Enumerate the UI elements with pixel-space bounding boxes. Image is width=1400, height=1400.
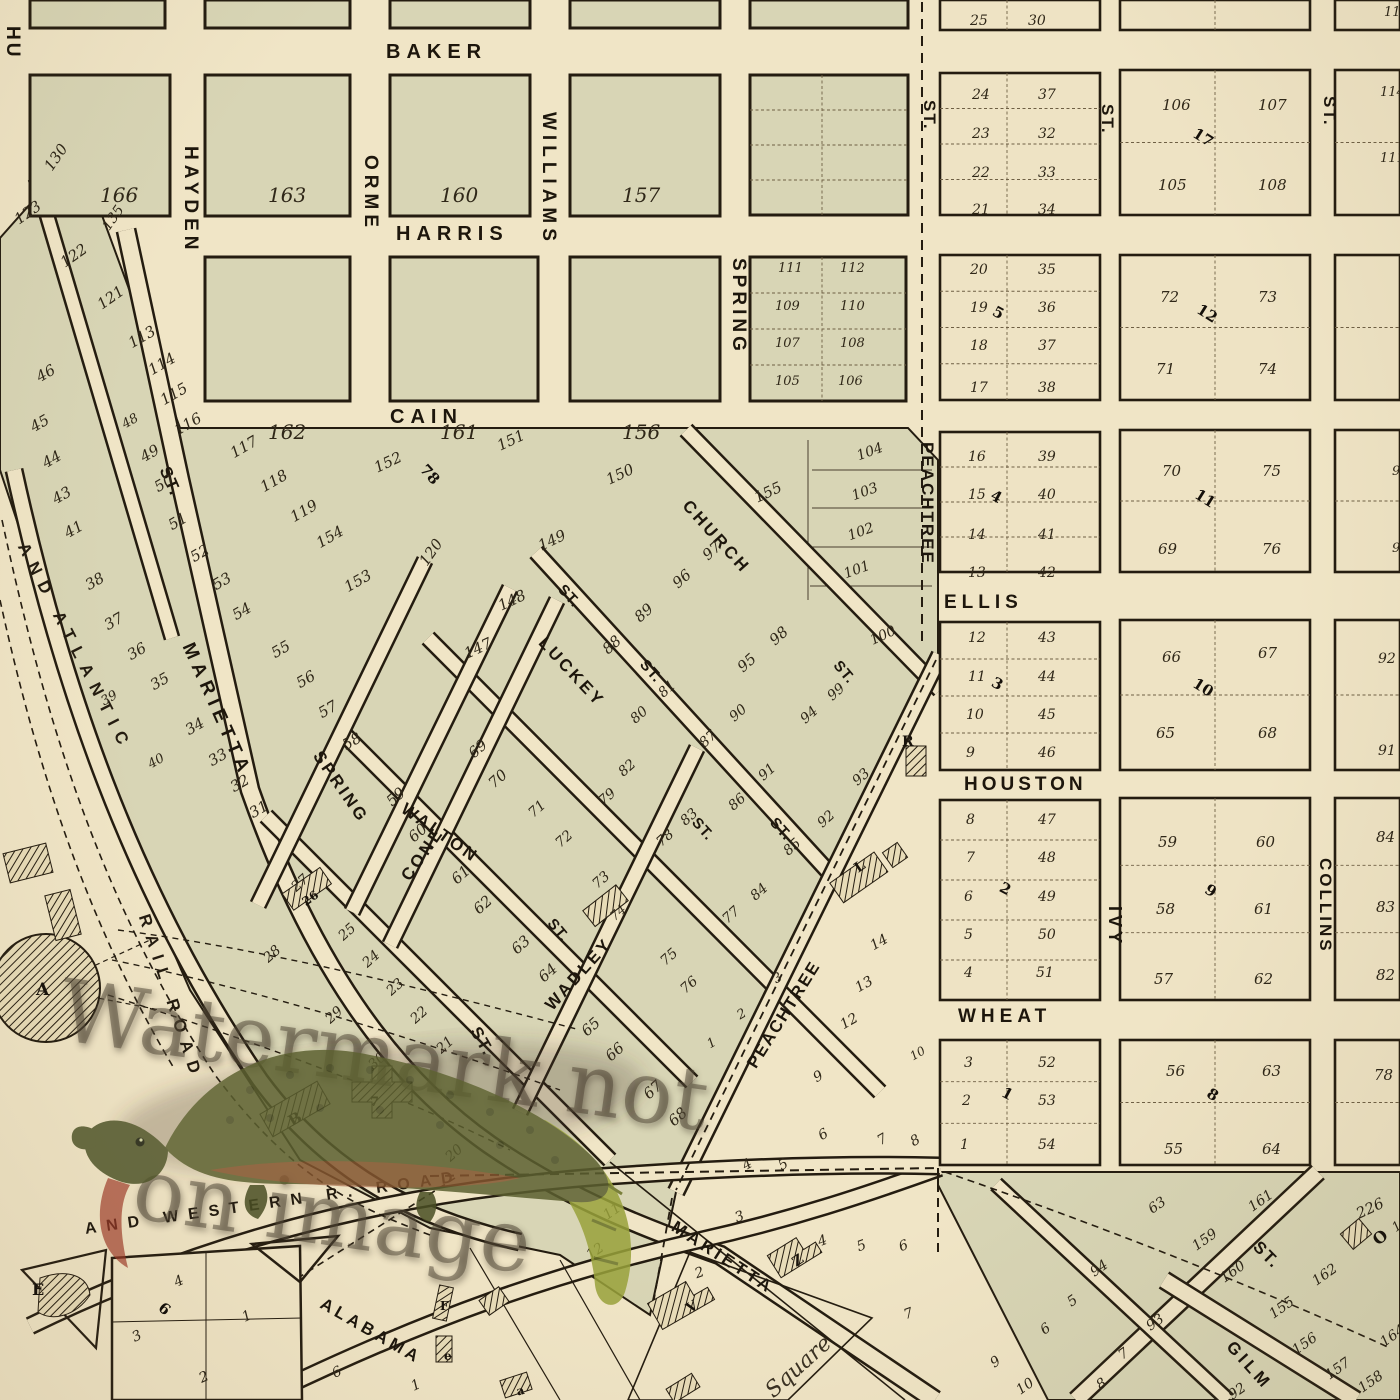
green-block-1: [205, 0, 350, 28]
ward-block-0: [940, 0, 1100, 30]
lot-number-109-248: 109: [775, 300, 800, 313]
lot-number-10-156: 10: [966, 708, 984, 722]
lot-number-2-172: 2: [962, 1094, 971, 1108]
lot-number-32-131: 32: [1038, 127, 1056, 141]
lot-number-15-146: 15: [968, 488, 986, 502]
lot-number-55-200: 55: [1164, 1142, 1183, 1157]
lot-number-39-145: 39: [1038, 450, 1056, 464]
lot-number-30-127: 30: [1028, 14, 1046, 28]
lot-number-111-246: 111: [778, 262, 803, 275]
street-label-st-9: ST.: [1321, 96, 1338, 127]
street-label-st-7: ST.: [921, 100, 938, 131]
lot-number-8-160: 8: [966, 813, 975, 827]
lot-number-163-1: 163: [268, 185, 306, 205]
lot-number-107-177: 107: [1258, 98, 1287, 113]
lot-number-112-247: 112: [840, 262, 865, 275]
ward-block-7: [1120, 0, 1310, 30]
lot-number-66-188: 66: [1162, 650, 1181, 665]
lot-number-83-210: 83: [1376, 900, 1395, 915]
building-label-a-0: A: [36, 982, 49, 999]
street-label-spring-6: SPRING: [729, 258, 748, 355]
lot-number-105-178: 105: [1158, 178, 1187, 193]
lot-number-9-158: 9: [966, 746, 975, 760]
lot-number-25-126: 25: [970, 14, 988, 28]
lot-number-11-154: 11: [968, 670, 986, 684]
lot-number-53-173: 53: [1038, 1094, 1056, 1108]
lot-number-43-153: 43: [1038, 631, 1056, 645]
lot-number-111-204: 111: [1380, 152, 1400, 165]
building-label-f-8: F: [440, 1300, 449, 1312]
lot-number-160-2: 160: [440, 185, 478, 205]
lot-number-61-195: 61: [1254, 902, 1273, 917]
vintage-atlanta-plat-map: Watermark not on image BAKERHARRISCAINHA…: [0, 0, 1400, 1400]
lot-number-72-180: 72: [1160, 290, 1179, 305]
green-block-3: [570, 0, 720, 28]
lot-number-65-190: 65: [1156, 726, 1175, 741]
lot-number-75-185: 75: [1262, 464, 1281, 479]
lot-number-110-249: 110: [840, 300, 865, 313]
lot-number-19-138: 19: [970, 301, 988, 315]
lot-number-7-162: 7: [966, 851, 975, 865]
lot-number-23-130: 23: [972, 127, 990, 141]
lot-number-50-167: 50: [1038, 928, 1056, 942]
street-label-collins-15: COLLINS: [1317, 858, 1334, 954]
green-block-10: [390, 257, 538, 401]
lot-number-157-3: 157: [622, 185, 660, 205]
green-block-2: [390, 0, 530, 28]
lot-number-156-6: 156: [622, 422, 660, 442]
lot-number-106-176: 106: [1162, 98, 1191, 113]
building-label-e-9: e: [444, 1350, 452, 1362]
lot-number-91-208: 91: [1378, 744, 1396, 758]
building-label-e-1: E: [32, 1282, 44, 1298]
lot-number-11-202: 11: [1384, 6, 1400, 19]
lot-number-17-142: 17: [970, 381, 988, 395]
lot-number-58-194: 58: [1156, 902, 1175, 917]
lot-number-56-198: 56: [1166, 1064, 1185, 1079]
lot-number-20-136: 20: [970, 263, 988, 277]
lot-number-22-132: 22: [972, 166, 990, 180]
lot-number-40-147: 40: [1038, 488, 1056, 502]
lot-number-13-150: 13: [968, 566, 986, 580]
street-label-st-8: ST.: [1099, 104, 1116, 135]
lot-number-48-163: 48: [1038, 851, 1056, 865]
lot-number-1-174: 1: [960, 1138, 969, 1152]
lot-number-84-209: 84: [1376, 830, 1395, 845]
lot-number-51-169: 51: [1036, 966, 1054, 980]
lot-number-78-212: 78: [1374, 1068, 1393, 1083]
building-label-r-6: R: [902, 735, 914, 749]
lot-number-57-196: 57: [1154, 972, 1173, 987]
lot-number-35-137: 35: [1038, 263, 1056, 277]
green-block-9: [205, 257, 350, 401]
lot-number-47-161: 47: [1038, 813, 1056, 827]
lot-number-162-4: 162: [268, 422, 306, 442]
street-label-orme-4: ORME: [361, 155, 380, 232]
lot-number-44-155: 44: [1038, 670, 1056, 684]
lot-number-36-139: 36: [1038, 301, 1056, 315]
street-label-baker-0: BAKER: [386, 42, 487, 62]
street-label-ivy-14: IVY: [1106, 906, 1124, 947]
lot-number-60-193: 60: [1256, 835, 1275, 850]
lot-number-73-181: 73: [1258, 290, 1277, 305]
lot-number-41-149: 41: [1038, 528, 1056, 542]
lot-number-54-175: 54: [1038, 1138, 1056, 1152]
lot-number-161-5: 161: [440, 422, 478, 442]
lot-number-12-152: 12: [968, 631, 986, 645]
lot-number-68-191: 68: [1258, 726, 1277, 741]
lot-number-34-135: 34: [1038, 203, 1056, 217]
lot-number-38-143: 38: [1038, 381, 1056, 395]
lot-number-107-250: 107: [775, 337, 800, 350]
street-label-harris-1: HARRIS: [396, 224, 509, 244]
lot-number-9-205: 9: [1392, 465, 1400, 478]
lot-number-6-164: 6: [964, 890, 973, 904]
lot-number-4-168: 4: [964, 966, 973, 980]
street-label-williams-5: WILLIAMS: [539, 112, 558, 246]
lot-number-9-206: 9: [1392, 542, 1400, 555]
street-label-hu-36: HU: [3, 26, 22, 59]
green-block-0: [30, 0, 165, 28]
lot-number-92-207: 92: [1378, 652, 1396, 666]
lot-number-59-192: 59: [1158, 835, 1177, 850]
lot-number-67-189: 67: [1258, 646, 1277, 661]
lot-number-42-151: 42: [1038, 566, 1056, 580]
lot-number-18-140: 18: [970, 339, 988, 353]
lot-number-14-148: 14: [968, 528, 986, 542]
lot-number-63-199: 63: [1262, 1064, 1281, 1079]
street-label-peachtree-10: PEACHTREE: [919, 442, 936, 565]
street-label-wheat-13: WHEAT: [958, 1007, 1051, 1026]
lot-number-49-165: 49: [1038, 890, 1056, 904]
lot-number-166-0: 166: [100, 185, 138, 205]
green-block-4: [750, 0, 908, 28]
lot-number-3-170: 3: [964, 1056, 973, 1070]
lot-number-106-253: 106: [838, 375, 863, 388]
lot-number-45-157: 45: [1038, 708, 1056, 722]
street-label-houston-12: HOUSTON: [964, 775, 1087, 794]
lot-number-37-129: 37: [1038, 88, 1056, 102]
lot-number-52-171: 52: [1038, 1056, 1056, 1070]
lot-number-5-166: 5: [964, 928, 973, 942]
street-label-hayden-3: HAYDEN: [181, 146, 200, 255]
lot-number-108-251: 108: [840, 337, 865, 350]
lot-number-108-179: 108: [1258, 178, 1287, 193]
lot-number-105-252: 105: [775, 375, 800, 388]
green-block-11: [570, 257, 720, 401]
lot-number-64-201: 64: [1262, 1142, 1281, 1157]
lot-number-114-203: 114: [1380, 86, 1400, 99]
lot-number-46-159: 46: [1038, 746, 1056, 760]
lot-number-33-133: 33: [1038, 166, 1056, 180]
street-label-ellis-11: ELLIS: [944, 593, 1023, 612]
lot-number-74-183: 74: [1258, 362, 1277, 377]
lot-number-71-182: 71: [1156, 362, 1175, 377]
lot-number-16-144: 16: [968, 450, 986, 464]
lot-number-24-128: 24: [972, 88, 990, 102]
lot-number-69-186: 69: [1158, 542, 1177, 557]
lot-number-37-141: 37: [1038, 339, 1056, 353]
lot-number-21-134: 21: [972, 203, 990, 217]
lot-number-76-187: 76: [1262, 542, 1281, 557]
lot-number-62-197: 62: [1254, 972, 1273, 987]
lot-number-82-211: 82: [1376, 968, 1395, 983]
lot-number-70-184: 70: [1162, 464, 1181, 479]
